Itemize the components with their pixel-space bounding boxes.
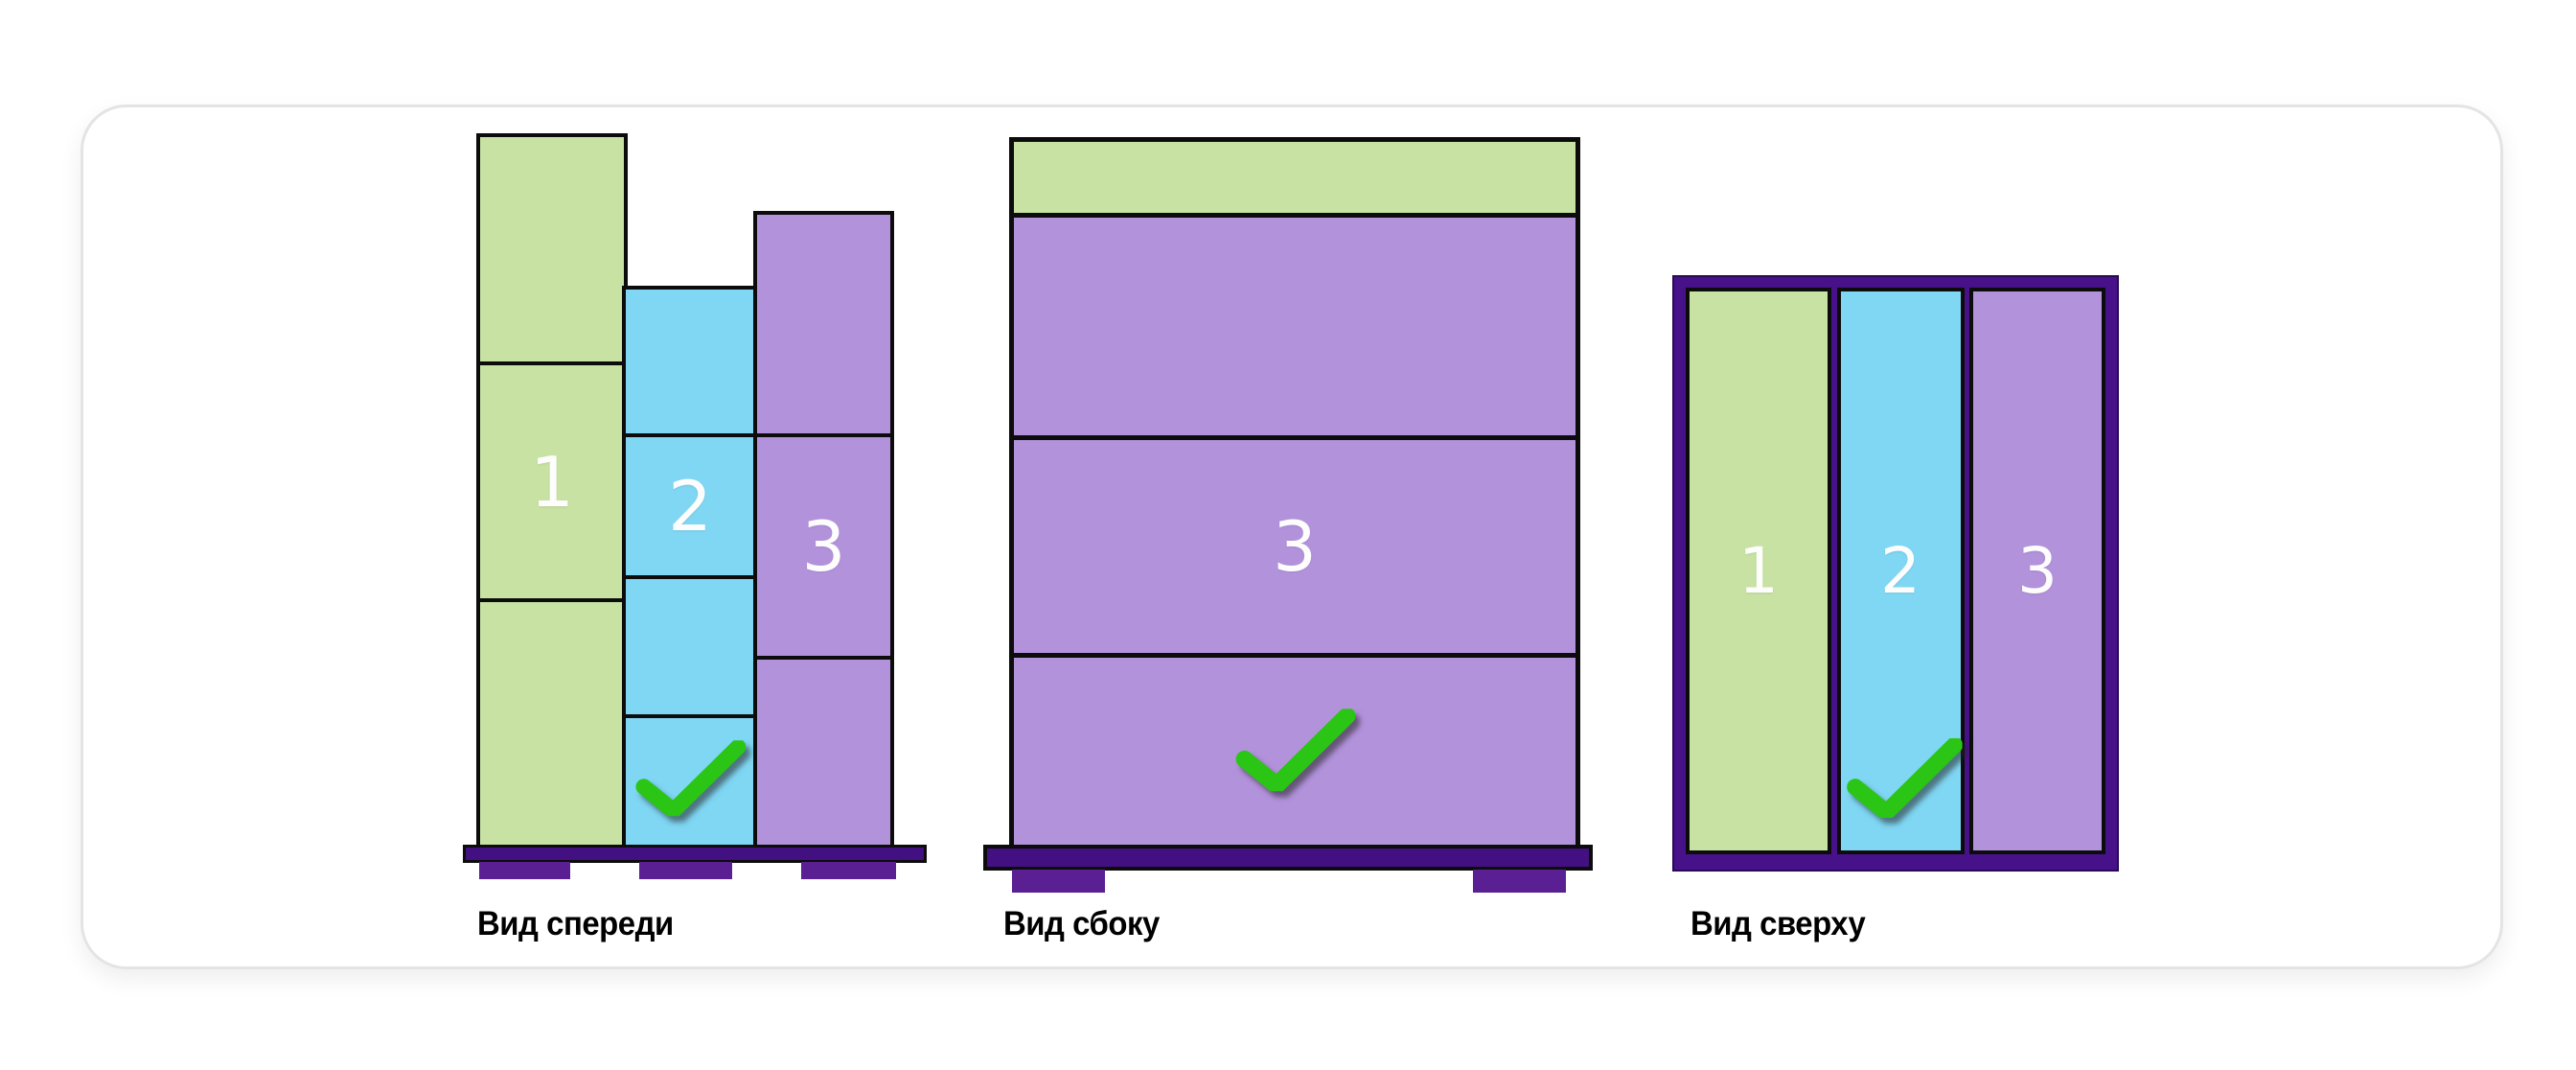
box-green-middle: 1 (480, 365, 624, 597)
box-number: 2 (668, 472, 712, 541)
box-number: 3 (1273, 512, 1317, 581)
view-caption-front: Вид спереди (477, 905, 674, 943)
view-caption-top: Вид сверху (1690, 905, 1865, 943)
side-layer-purple-3 (1014, 658, 1575, 845)
box-purple-3 (757, 660, 890, 845)
pallet-foot (801, 862, 896, 879)
pallet-foot (1012, 870, 1105, 893)
top-view-strips: 1 2 3 (1686, 288, 2105, 854)
box-blue-2: 2 (626, 437, 754, 575)
box-green-bottom (480, 602, 624, 845)
box-blue-3 (626, 579, 754, 714)
checkmark-icon (634, 740, 746, 816)
box-blue-4 (626, 718, 754, 845)
front-column-purple: 3 (753, 211, 894, 849)
checkmark-icon (1846, 738, 1963, 818)
front-column-green: 1 (476, 133, 628, 849)
side-layer-green (1014, 142, 1575, 213)
pallet-deck-front (463, 845, 927, 863)
box-number: 1 (1738, 540, 1779, 603)
box-number: 1 (530, 448, 574, 517)
strip-green: 1 (1686, 288, 1831, 854)
checkmark-icon (1234, 709, 1355, 791)
box-number: 3 (802, 512, 846, 581)
side-layer-purple-1 (1014, 218, 1575, 434)
front-column-blue: 2 (622, 286, 758, 849)
box-purple-1 (757, 215, 890, 433)
box-green-top (480, 137, 624, 361)
pallet-frame-top: 1 2 3 (1672, 275, 2119, 872)
box-blue-1 (626, 290, 754, 433)
box-number: 3 (2017, 540, 2058, 603)
side-layer-purple-2: 3 (1014, 440, 1575, 653)
strip-purple: 3 (1969, 288, 2105, 854)
side-box-stack: 3 (1009, 137, 1580, 849)
view-caption-side: Вид сбоку (1003, 905, 1160, 943)
pallet-foot (1473, 870, 1566, 893)
page: 1 2 3 В (0, 0, 2576, 1070)
pallet-foot (479, 862, 570, 879)
box-number: 2 (1880, 540, 1920, 603)
strip-blue: 2 (1837, 288, 1965, 854)
pallet-deck-side (983, 845, 1593, 871)
box-purple-2: 3 (757, 437, 890, 656)
pallet-foot (639, 862, 732, 879)
